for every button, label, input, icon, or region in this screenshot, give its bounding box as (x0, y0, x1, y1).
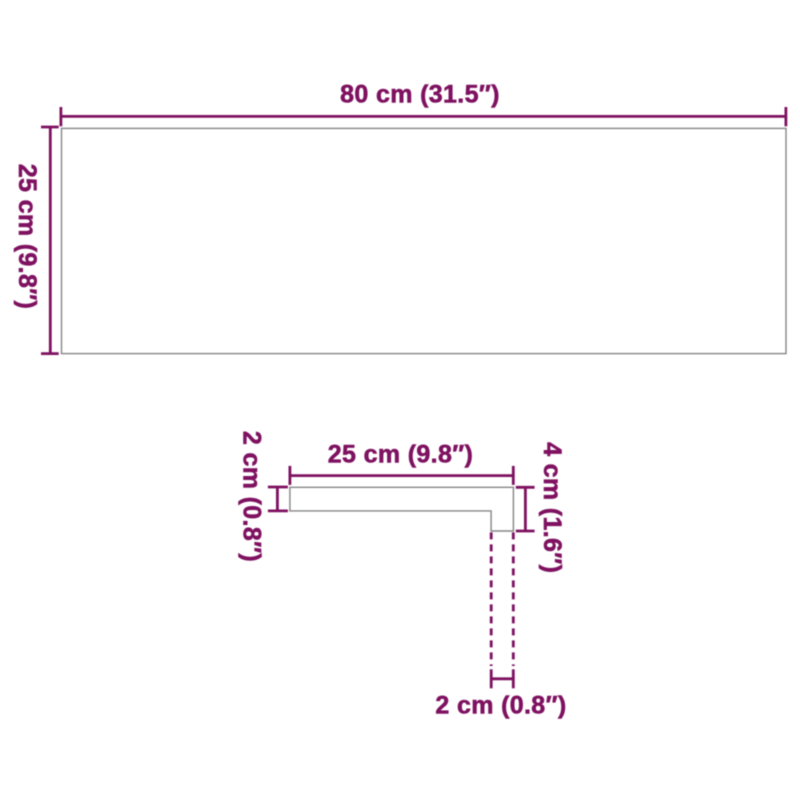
svg-text:80 cm (31.5″): 80 cm (31.5″) (340, 81, 500, 109)
svg-text:25 cm (9.8″): 25 cm (9.8″) (13, 164, 41, 309)
svg-text:25 cm (9.8″): 25 cm (9.8″) (328, 441, 473, 469)
svg-text:2 cm (0.8″): 2 cm (0.8″) (237, 431, 265, 562)
svg-text:2 cm (0.8″): 2 cm (0.8″) (435, 691, 566, 719)
svg-text:4 cm (1.6″): 4 cm (1.6″) (538, 442, 566, 573)
